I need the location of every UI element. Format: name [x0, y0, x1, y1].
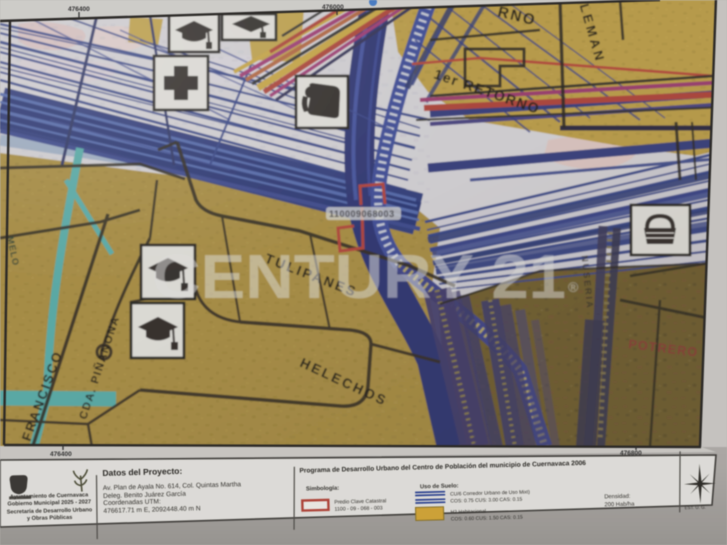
- svg-text:H2 Habitacional: H2 Habitacional: [451, 509, 486, 516]
- svg-text:Uso de Suelo:: Uso de Suelo:: [420, 483, 459, 490]
- svg-text:Simbología:: Simbología:: [306, 486, 339, 493]
- svg-text:476400: 476400: [68, 6, 90, 13]
- svg-text:y Obras Públicas: y Obras Públicas: [27, 515, 73, 522]
- svg-text:476400: 476400: [50, 451, 72, 458]
- svg-text:200 Hab/ha: 200 Hab/ha: [604, 502, 635, 509]
- svg-text:EST. U. G.: EST. U. G.: [685, 505, 706, 511]
- svg-text:476000: 476000: [322, 4, 344, 11]
- svg-text:Densidad:: Densidad:: [604, 494, 631, 501]
